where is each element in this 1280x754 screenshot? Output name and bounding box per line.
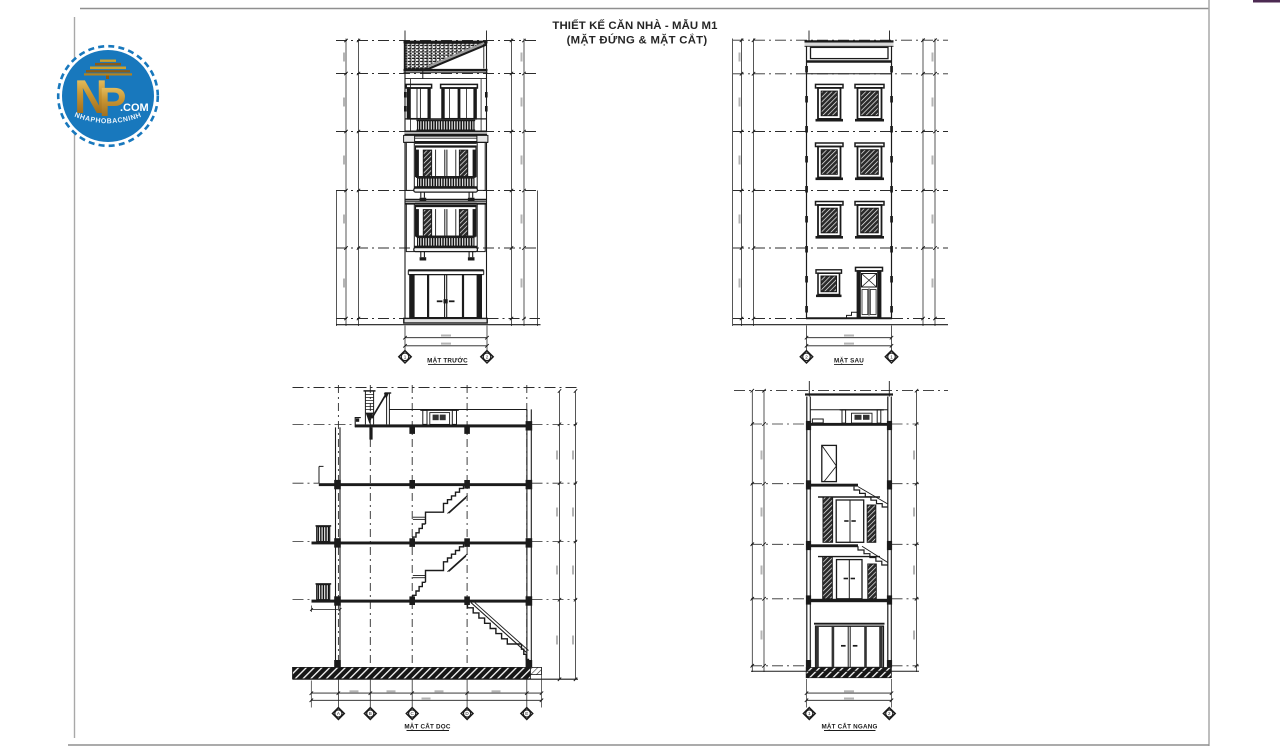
svg-text:1: 1 xyxy=(890,355,893,360)
svg-text:1: 1 xyxy=(808,711,811,716)
svg-text:(MẶT ĐỨNG & MẶT CẮT): (MẶT ĐỨNG & MẶT CẮT) xyxy=(567,34,708,47)
svg-text:MẶT SAU: MẶT SAU xyxy=(834,355,864,364)
svg-text:MẶT TRƯỚC: MẶT TRƯỚC xyxy=(427,355,468,364)
svg-text:1: 1 xyxy=(404,355,407,360)
svg-text:MẶT CẮT DỌC: MẶT CẮT DỌC xyxy=(404,722,451,731)
svg-text:THIẾT KẾ CĂN NHÀ - MẪU M1: THIẾT KẾ CĂN NHÀ - MẪU M1 xyxy=(552,19,718,32)
svg-text:2: 2 xyxy=(805,355,808,360)
svg-text:2: 2 xyxy=(888,711,891,716)
svg-text:B: B xyxy=(369,711,372,716)
svg-text:E: E xyxy=(525,711,528,716)
svg-text:2: 2 xyxy=(486,355,489,360)
svg-text:.COM: .COM xyxy=(120,102,149,114)
svg-text:MẶT CẮT NGANG: MẶT CẮT NGANG xyxy=(821,722,877,731)
